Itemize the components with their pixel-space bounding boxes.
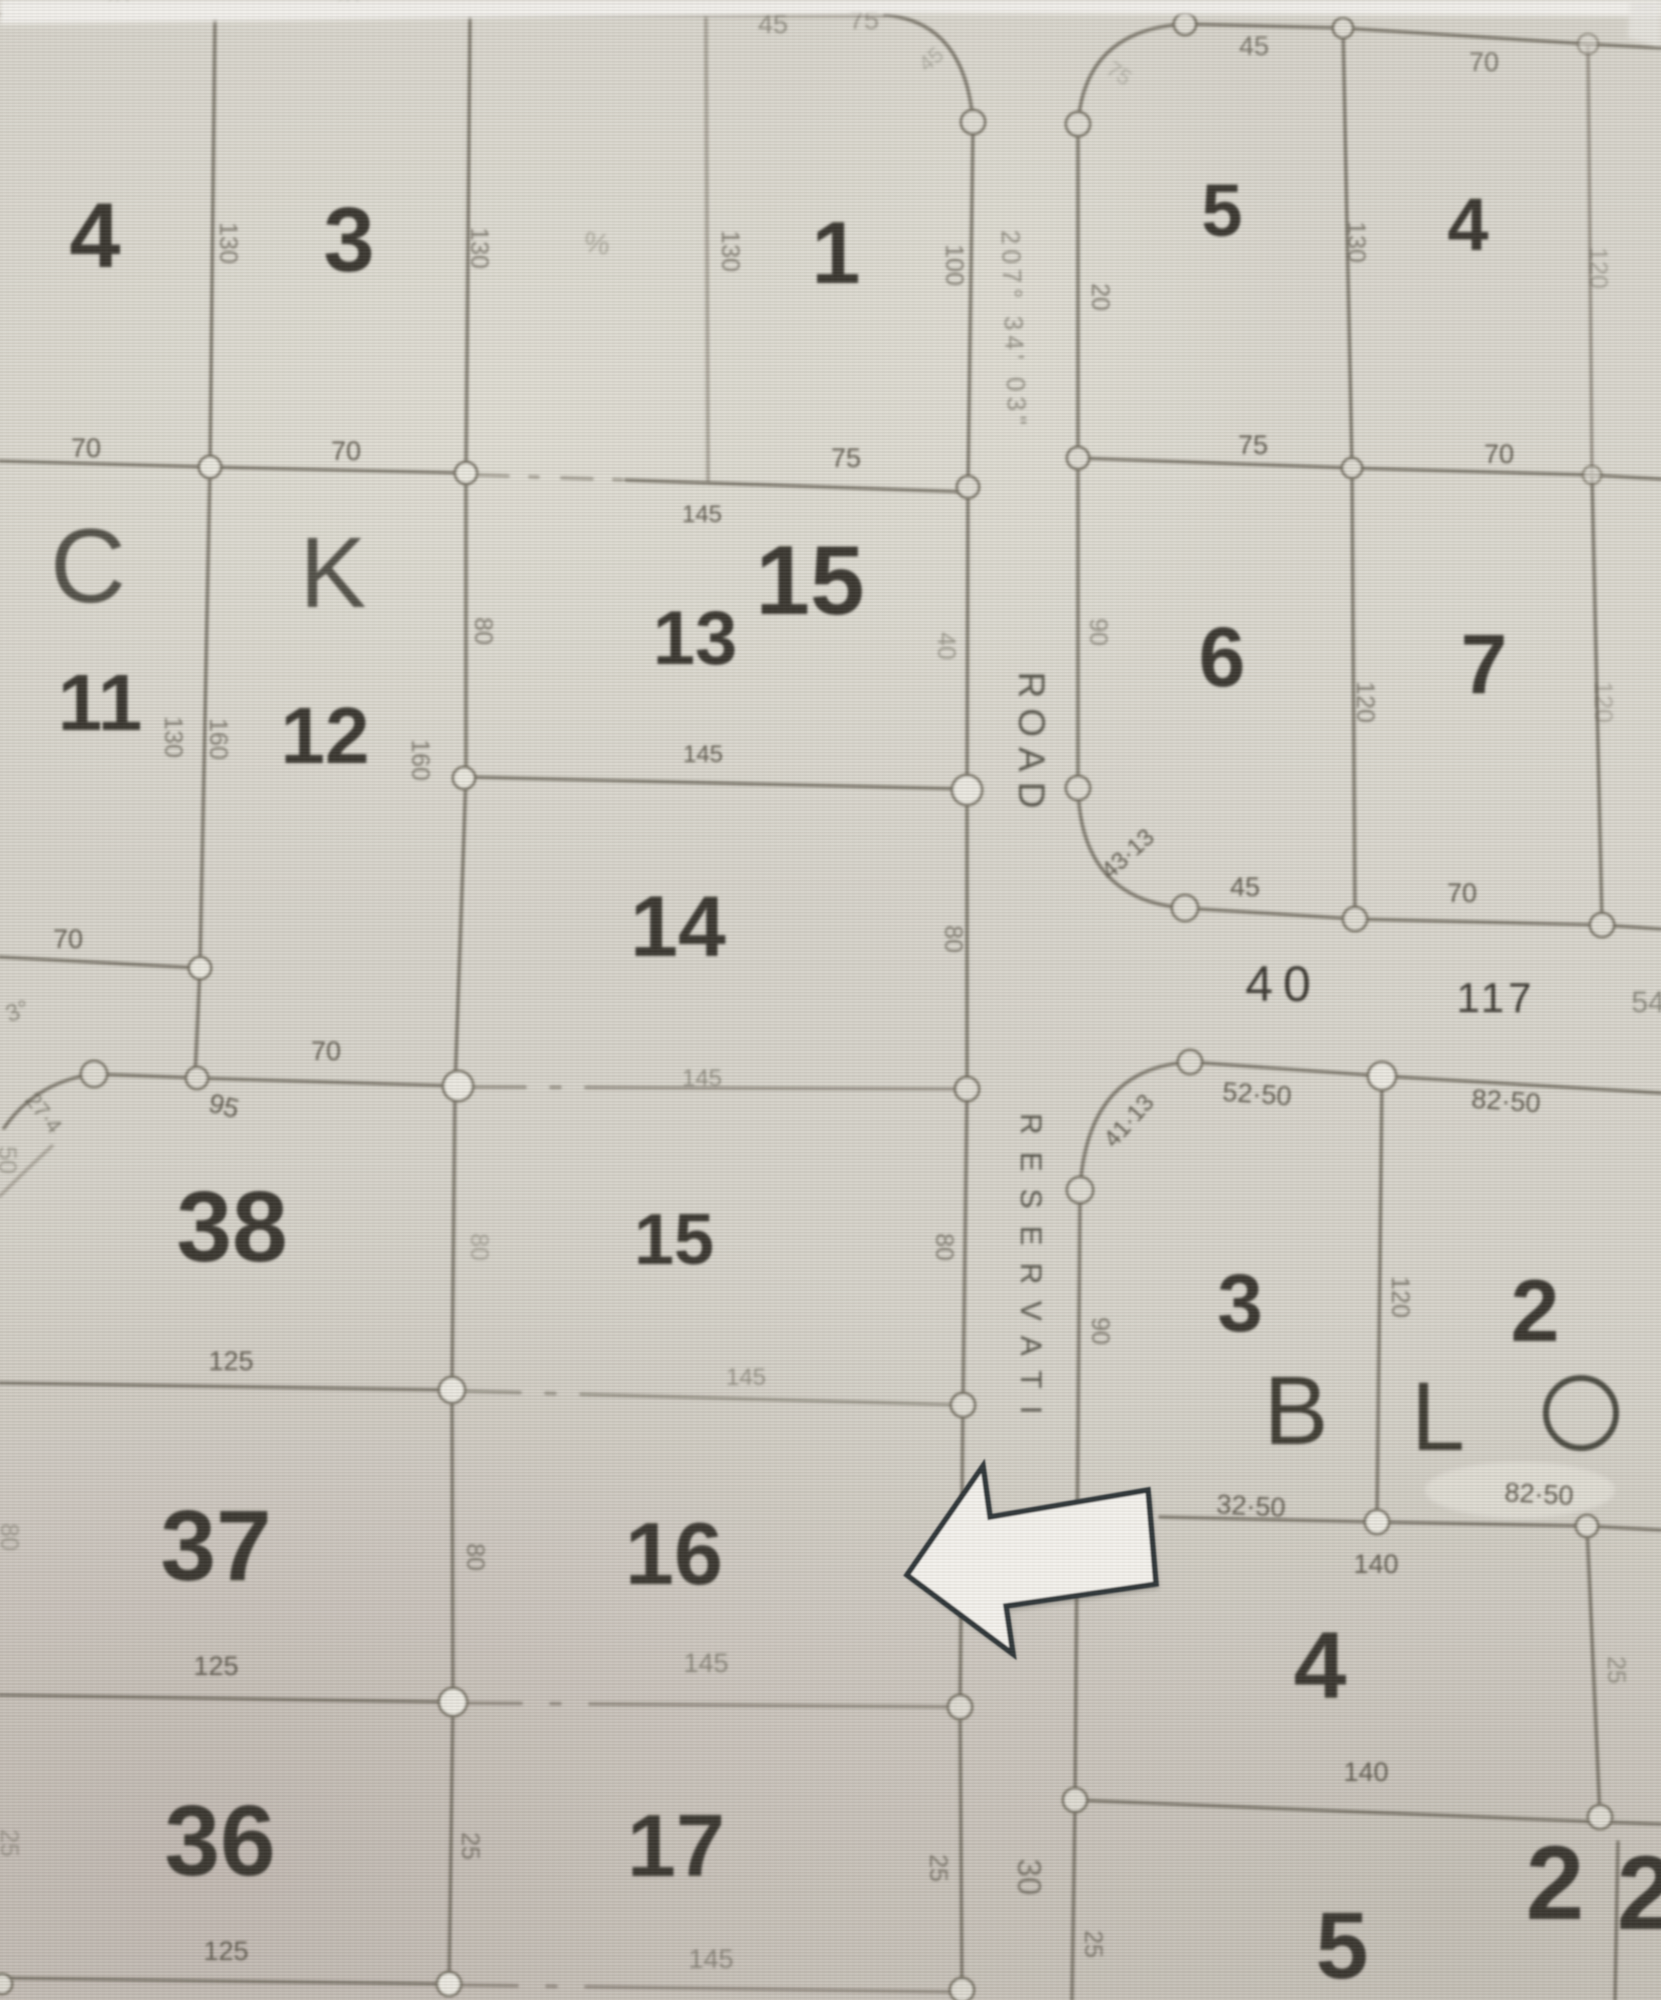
svg-text:25: 25 (456, 1832, 484, 1860)
svg-text:75: 75 (1238, 430, 1268, 460)
svg-text:15: 15 (755, 525, 864, 635)
svg-text:%: % (582, 226, 612, 261)
svg-text:145: 145 (682, 1065, 722, 1092)
svg-text:4: 4 (1447, 183, 1488, 266)
svg-text:130: 130 (465, 227, 493, 269)
svg-text:ROAD: ROAD (1011, 672, 1052, 819)
svg-text:70: 70 (311, 1036, 341, 1066)
svg-text:5: 5 (1201, 169, 1242, 252)
svg-text:30: 30 (1011, 1859, 1048, 1896)
svg-text:100: 100 (940, 244, 968, 286)
svg-text:4: 4 (1294, 1613, 1347, 1719)
svg-text:120: 120 (1589, 681, 1617, 723)
svg-text:125: 125 (203, 1936, 248, 1966)
svg-text:11: 11 (58, 658, 143, 747)
svg-text:125: 125 (193, 1651, 238, 1681)
svg-text:6: 6 (1199, 610, 1246, 704)
svg-text:25: 25 (924, 1854, 952, 1882)
svg-text:70: 70 (331, 436, 361, 466)
svg-text:15: 15 (634, 1200, 714, 1280)
svg-text:5: 5 (1316, 1893, 1369, 1999)
svg-text:160: 160 (204, 718, 232, 760)
svg-text:70: 70 (53, 924, 83, 954)
svg-text:140: 140 (1353, 1549, 1398, 1579)
svg-text:117: 117 (1457, 974, 1536, 1021)
svg-text:1: 1 (812, 203, 861, 302)
svg-text:145: 145 (683, 741, 723, 768)
svg-text:52·50: 52·50 (1222, 1077, 1293, 1112)
svg-text:130: 130 (214, 222, 242, 264)
svg-text:38: 38 (176, 1171, 287, 1283)
svg-text:80: 80 (0, 1523, 23, 1551)
svg-text:130: 130 (716, 230, 744, 272)
svg-text:130: 130 (1342, 221, 1370, 263)
svg-text:75: 75 (831, 443, 861, 473)
svg-text:90: 90 (1086, 1317, 1114, 1345)
svg-text:14: 14 (630, 879, 726, 975)
svg-text:45: 45 (1239, 31, 1269, 61)
svg-text:80: 80 (469, 617, 497, 645)
svg-text:50: 50 (0, 1146, 21, 1174)
svg-text:L: L (1411, 1362, 1465, 1471)
svg-text:80: 80 (461, 1543, 489, 1571)
svg-text:40: 40 (1245, 956, 1321, 1012)
svg-text:3: 3 (1217, 1258, 1263, 1349)
svg-text:12: 12 (281, 691, 370, 780)
svg-text:B: B (1264, 1356, 1329, 1465)
svg-text:20: 20 (1086, 283, 1114, 311)
svg-text:2: 2 (1526, 1825, 1584, 1942)
svg-text:40: 40 (932, 632, 960, 660)
svg-text:45: 45 (1230, 872, 1260, 902)
svg-text:13: 13 (653, 596, 738, 681)
svg-text:4: 4 (69, 185, 120, 287)
svg-text:145: 145 (683, 1648, 728, 1678)
svg-text:80: 80 (465, 1233, 493, 1261)
svg-text:C: C (50, 508, 126, 625)
svg-text:RESERVATI: RESERVATI (1014, 1113, 1047, 1431)
svg-text:70: 70 (1484, 439, 1514, 469)
svg-text:25: 25 (1602, 1656, 1630, 1684)
svg-text:120: 120 (1386, 1276, 1414, 1318)
svg-text:90: 90 (1084, 618, 1112, 646)
svg-text:120: 120 (1351, 681, 1379, 723)
svg-text:80: 80 (930, 1233, 958, 1261)
svg-text:2: 2 (1617, 1835, 1661, 1952)
svg-text:25: 25 (1079, 1930, 1107, 1958)
svg-text:145: 145 (682, 501, 722, 528)
svg-text:160: 160 (406, 739, 434, 781)
svg-text:120: 120 (1584, 247, 1612, 289)
svg-text:145: 145 (726, 1364, 766, 1391)
svg-text:16: 16 (625, 1504, 723, 1603)
svg-text:54: 54 (1631, 986, 1661, 1019)
svg-text:70: 70 (1469, 47, 1499, 77)
svg-text:37: 37 (160, 1490, 271, 1602)
svg-text:32·50: 32·50 (1216, 1489, 1287, 1523)
svg-text:82·50: 82·50 (1504, 1477, 1575, 1511)
svg-text:70: 70 (71, 433, 101, 463)
svg-text:3: 3 (323, 189, 374, 291)
svg-text:17: 17 (627, 1796, 725, 1895)
svg-text:36: 36 (164, 1785, 275, 1897)
svg-text:70: 70 (1447, 878, 1477, 908)
svg-text:2: 2 (1511, 1261, 1560, 1360)
svg-text:145: 145 (688, 1944, 733, 1974)
svg-text:K: K (300, 517, 367, 629)
svg-text:25: 25 (0, 1829, 23, 1857)
svg-text:125: 125 (208, 1346, 253, 1376)
svg-text:80: 80 (939, 925, 967, 953)
svg-text:82·50: 82·50 (1471, 1084, 1542, 1119)
svg-text:130: 130 (159, 716, 187, 758)
svg-text:140: 140 (1343, 1757, 1388, 1787)
svg-text:7: 7 (1461, 617, 1508, 711)
